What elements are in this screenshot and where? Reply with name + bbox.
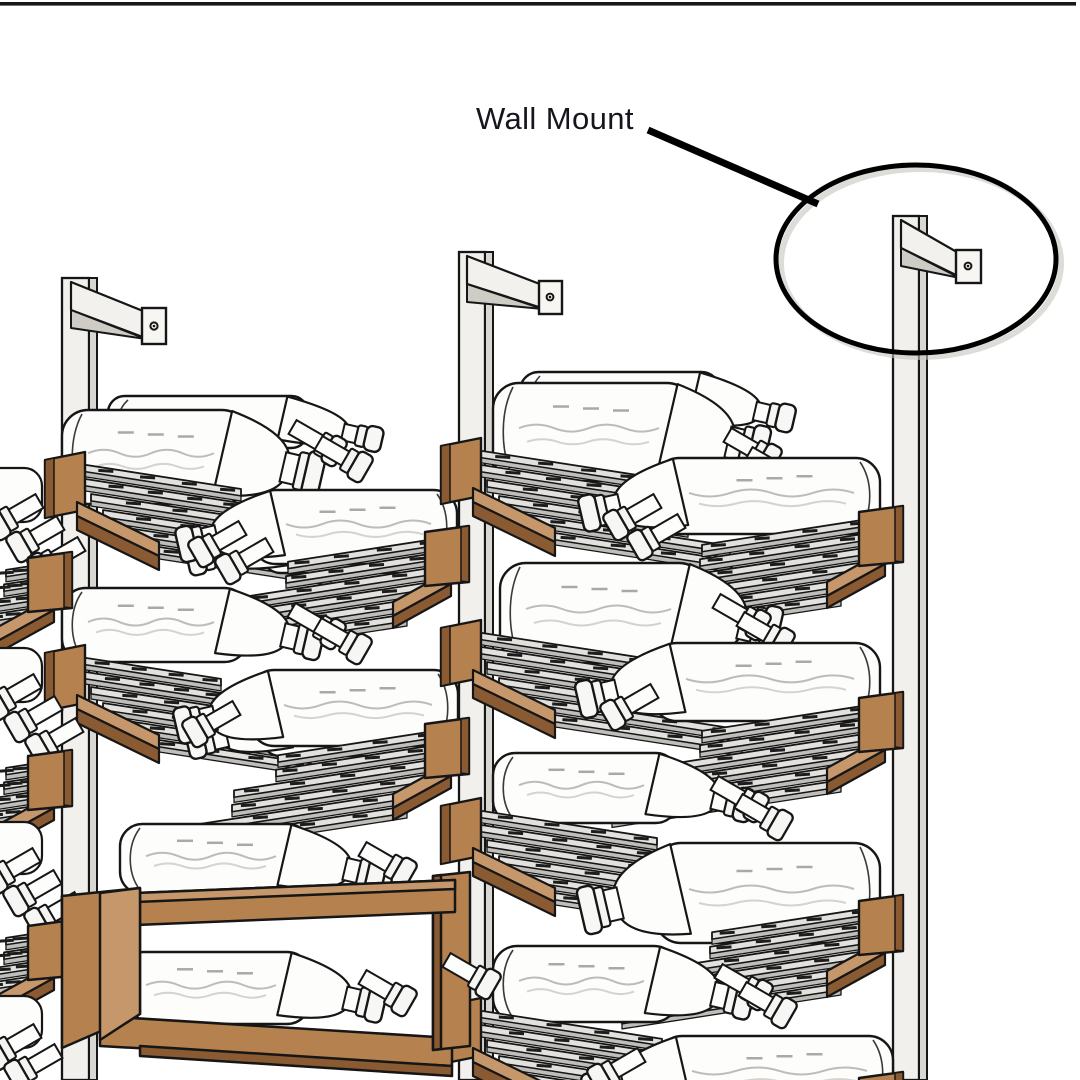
wine-crate [62,824,503,1076]
wine-rack-diagram [0,0,1080,1080]
left-edge-rack-4 [0,996,66,1080]
leader-line [648,130,818,204]
top-border-line [0,2,1076,6]
diagram-stage: Wall Mount [0,0,1080,1080]
wall-mount-label: Wall Mount [476,101,634,137]
